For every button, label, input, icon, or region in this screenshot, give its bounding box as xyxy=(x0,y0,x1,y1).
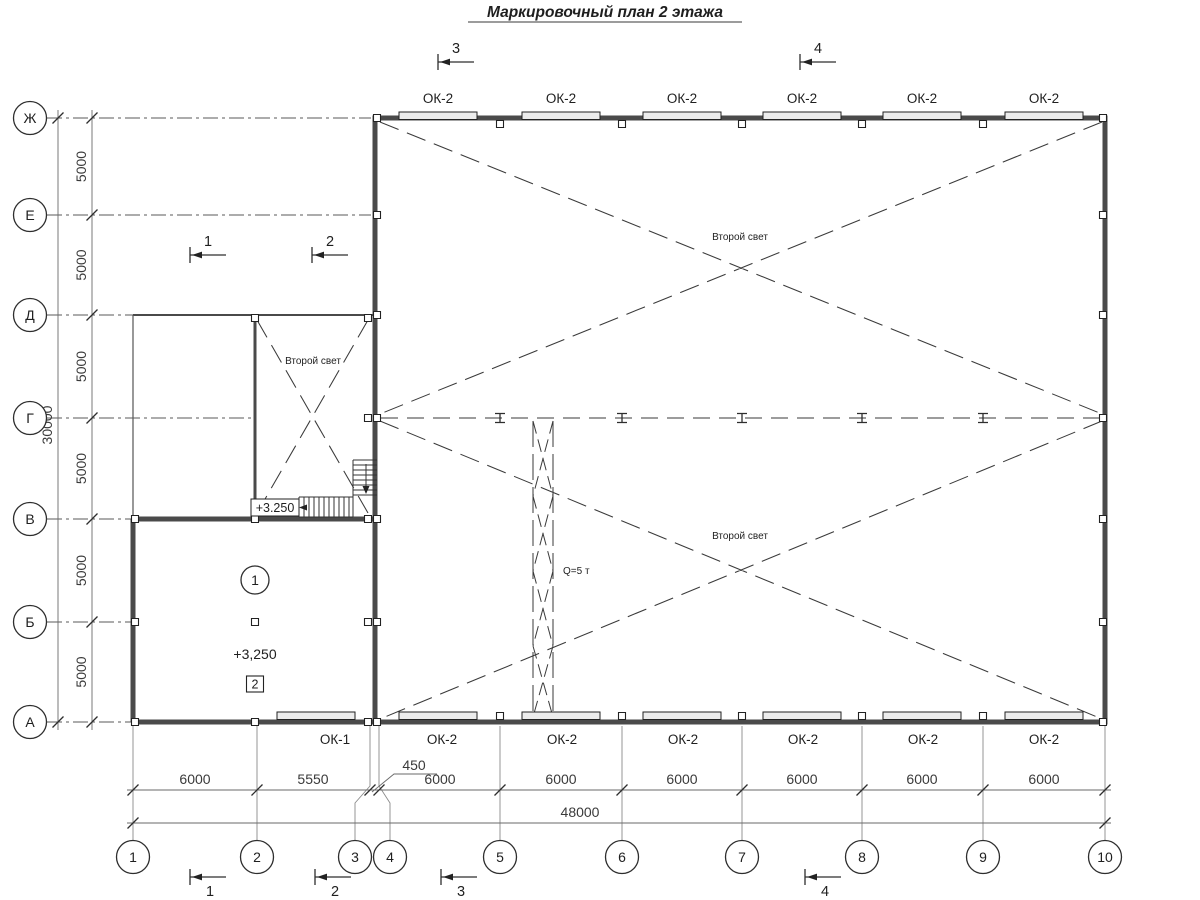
window-label: ОК-2 xyxy=(547,732,577,747)
stair-level-arrow xyxy=(299,505,307,511)
windows xyxy=(277,112,1083,720)
section-arrow xyxy=(314,252,324,259)
left-dim-lines xyxy=(58,110,92,730)
second-light-diagonals xyxy=(257,122,1102,719)
second-light-upper-label: Второй свет xyxy=(712,232,768,243)
row-axis-label: А xyxy=(25,714,35,730)
axis-bubbles-cols: 1 2 3 4 5 6 7 8 9 10 xyxy=(117,841,1122,874)
col-axis-label: 10 xyxy=(1097,849,1113,865)
window-label: ОК-2 xyxy=(427,732,457,747)
room-level-label: +3,250 xyxy=(233,646,276,662)
stair-flight-horizontal xyxy=(299,497,353,517)
crane-runway: Q=5 т xyxy=(533,421,590,717)
dim-value: 5000 xyxy=(73,656,89,687)
col-axis-label: 9 xyxy=(979,849,987,865)
section-arrow xyxy=(192,874,202,881)
col-axis-label: 6 xyxy=(618,849,626,865)
floor-plan-drawing: Маркировочный план 2 этажа Q=5 т +3.250 xyxy=(0,0,1200,900)
section-markers-middle: 1 2 xyxy=(190,234,348,263)
window-label: ОК-2 xyxy=(668,732,698,747)
col-axis-label: 7 xyxy=(738,849,746,865)
dim-total-width: 48000 xyxy=(561,804,600,820)
section-number: 1 xyxy=(204,234,212,250)
bottom-window-symbols xyxy=(277,712,1083,720)
section-number: 3 xyxy=(457,884,465,900)
col-axis-label: 2 xyxy=(253,849,261,865)
section-arrow xyxy=(317,874,327,881)
section-markers-top: 3 4 xyxy=(438,41,836,70)
dimensions-left: 5000 5000 5000 5000 5000 5000 30000 xyxy=(39,110,98,730)
hall-perimeter-wall xyxy=(375,118,1105,722)
page-title: Маркировочный план 2 этажа xyxy=(487,4,723,21)
section-arrow xyxy=(802,59,812,66)
section-number: 3 xyxy=(452,41,460,57)
row-axis-label: Д xyxy=(25,307,35,323)
left-dim-ticks xyxy=(53,113,98,728)
section-number: 1 xyxy=(206,884,214,900)
bottom-dim-ticks xyxy=(128,785,1111,829)
room-number-label: 1 xyxy=(251,572,259,588)
stairs: +3.250 xyxy=(251,460,377,517)
window-label: ОК-2 xyxy=(1029,732,1059,747)
dim-value: 6000 xyxy=(1028,771,1059,787)
window-label: ОК-2 xyxy=(787,91,817,106)
crane-capacity-label: Q=5 т xyxy=(563,566,590,577)
window-label: ОК-2 xyxy=(788,732,818,747)
window-label: ОК-2 xyxy=(546,91,576,106)
dim-value: 6000 xyxy=(545,771,576,787)
dim-value: 6000 xyxy=(424,771,455,787)
bottom-dim-lines xyxy=(127,790,1111,823)
walls xyxy=(133,118,1105,722)
dim-value: 5000 xyxy=(73,555,89,586)
col-axis-label: 4 xyxy=(386,849,394,865)
drawing-title: Маркировочный план 2 этажа xyxy=(468,4,742,22)
stair-level-label: +3.250 xyxy=(256,501,295,515)
dim-value: 5000 xyxy=(73,453,89,484)
dim-value: 6000 xyxy=(179,771,210,787)
row-axis-label: Ж xyxy=(24,110,37,126)
dim-value: 5550 xyxy=(297,771,328,787)
room-tag-label: 2 xyxy=(252,678,259,692)
crane-truss-bracing xyxy=(533,421,553,717)
col-axis-label: 8 xyxy=(858,849,866,865)
dim-offset-value: 450 xyxy=(402,757,426,773)
row-axis-label: Г xyxy=(26,410,34,426)
dim-value: 5000 xyxy=(73,151,89,182)
col-axis-label: 1 xyxy=(129,849,137,865)
row-axis-label: Б xyxy=(25,614,34,630)
dim-value: 5000 xyxy=(73,249,89,280)
drawing-sheet: Маркировочный план 2 этажа Q=5 т +3.250 xyxy=(0,0,1200,900)
axis-bubbles-rows: Ж Е Д Г В Б А xyxy=(14,102,47,739)
room-annotations: 1 +3,250 2 xyxy=(233,566,276,692)
window-label: ОК-2 xyxy=(423,91,453,106)
column-markers xyxy=(132,115,1107,726)
section-number: 4 xyxy=(821,884,829,900)
section-arrow xyxy=(192,252,202,259)
section-number: 4 xyxy=(814,41,822,57)
dim-value: 6000 xyxy=(906,771,937,787)
row-axis-label: Е xyxy=(25,207,34,223)
section-number: 2 xyxy=(326,234,334,250)
window-labels: ОК-2 ОК-2 ОК-2 ОК-2 ОК-2 ОК-2 ОК-1 ОК-2 … xyxy=(320,91,1059,747)
window-label: ОК-2 xyxy=(667,91,697,106)
second-light-room-label: Второй свет xyxy=(285,356,341,367)
crane-rail-lines xyxy=(533,421,553,717)
col-axis-label: 3 xyxy=(351,849,359,865)
window-label: ОК-1 xyxy=(320,732,350,747)
window-label: ОК-2 xyxy=(907,91,937,106)
dim-value: 6000 xyxy=(666,771,697,787)
second-light-lower-label: Второй свет xyxy=(712,531,768,542)
dim-value: 5000 xyxy=(73,351,89,382)
window-label: ОК-2 xyxy=(1029,91,1059,106)
section-arrow xyxy=(440,59,450,66)
dim-value: 6000 xyxy=(786,771,817,787)
section-arrow xyxy=(443,874,453,881)
grid-axis-lines xyxy=(47,118,371,722)
dimensions-bottom: 6000 5550 6000 6000 6000 6000 6000 6000 … xyxy=(127,726,1111,841)
row-axis-label: В xyxy=(25,511,34,527)
section-number: 2 xyxy=(331,884,339,900)
section-arrow xyxy=(807,874,817,881)
col-axis-label: 5 xyxy=(496,849,504,865)
window-label: ОК-2 xyxy=(908,732,938,747)
bottom-extension-lines xyxy=(133,726,1105,841)
